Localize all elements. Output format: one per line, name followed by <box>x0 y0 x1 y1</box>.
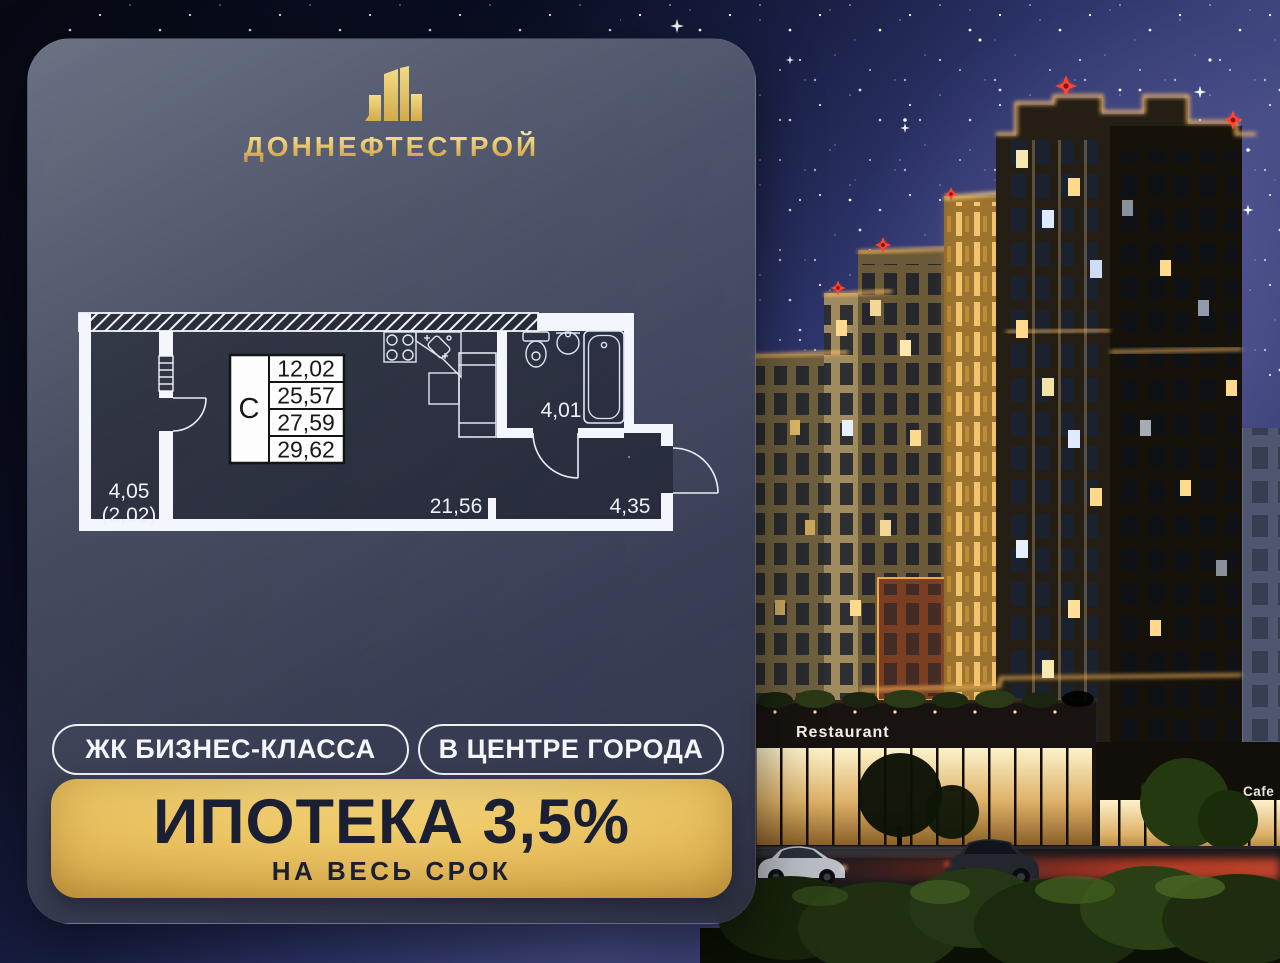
poster-root: Restaurant Cafe <box>0 0 1280 963</box>
badge-business-class-label: ЖК БИЗНЕС-КЛАССА <box>85 734 375 765</box>
glass-panel: ДОННЕФТЕСТРОЙ <box>27 38 756 924</box>
door-entrance <box>673 448 718 493</box>
foreground-bushes <box>700 866 1280 963</box>
balcony-area-label: 4,05 <box>109 480 150 503</box>
area-row: 12,02 <box>277 356 335 382</box>
living-area-label: 21,56 <box>430 495 483 518</box>
badge-city-center-label: В ЦЕНТРЕ ГОРОДА <box>439 734 704 765</box>
area-row: 29,62 <box>277 437 335 463</box>
brand-logo: ДОННЕФТЕСТРОЙ <box>28 61 755 163</box>
badge-city-center[interactable]: В ЦЕНТРЕ ГОРОДА <box>418 724 724 775</box>
restaurant-sign: Restaurant <box>796 724 890 741</box>
area-table: С 12,02 25,57 27,59 29,62 <box>230 355 344 463</box>
bathroom-area-label: 4,01 <box>541 399 582 422</box>
balcony-reduced-label: (2,02) <box>102 504 157 527</box>
mortgage-rate-title: ИПОТЕКА 3,5% <box>153 790 630 854</box>
area-row: 25,57 <box>277 383 335 409</box>
brand-building-icon <box>362 61 422 127</box>
area-row: 27,59 <box>277 410 335 436</box>
badge-business-class[interactable]: ЖК БИЗНЕС-КЛАССА <box>52 724 409 775</box>
hall-area-label: 4,35 <box>610 495 651 518</box>
hatched-wall <box>79 313 538 331</box>
brand-name: ДОННЕФТЕСТРОЙ <box>244 131 539 163</box>
floor-plan: С 12,02 25,57 27,59 29,62 4,05 (2,02) 21… <box>77 307 725 539</box>
cafe-sign: Cafe <box>1243 784 1274 799</box>
unit-type-label: С <box>239 393 260 425</box>
far-right-tower <box>1240 428 1280 780</box>
mortgage-term-subtitle: НА ВЕСЬ СРОК <box>272 856 511 887</box>
mortgage-banner: ИПОТЕКА 3,5% НА ВЕСЬ СРОК <box>51 779 732 898</box>
